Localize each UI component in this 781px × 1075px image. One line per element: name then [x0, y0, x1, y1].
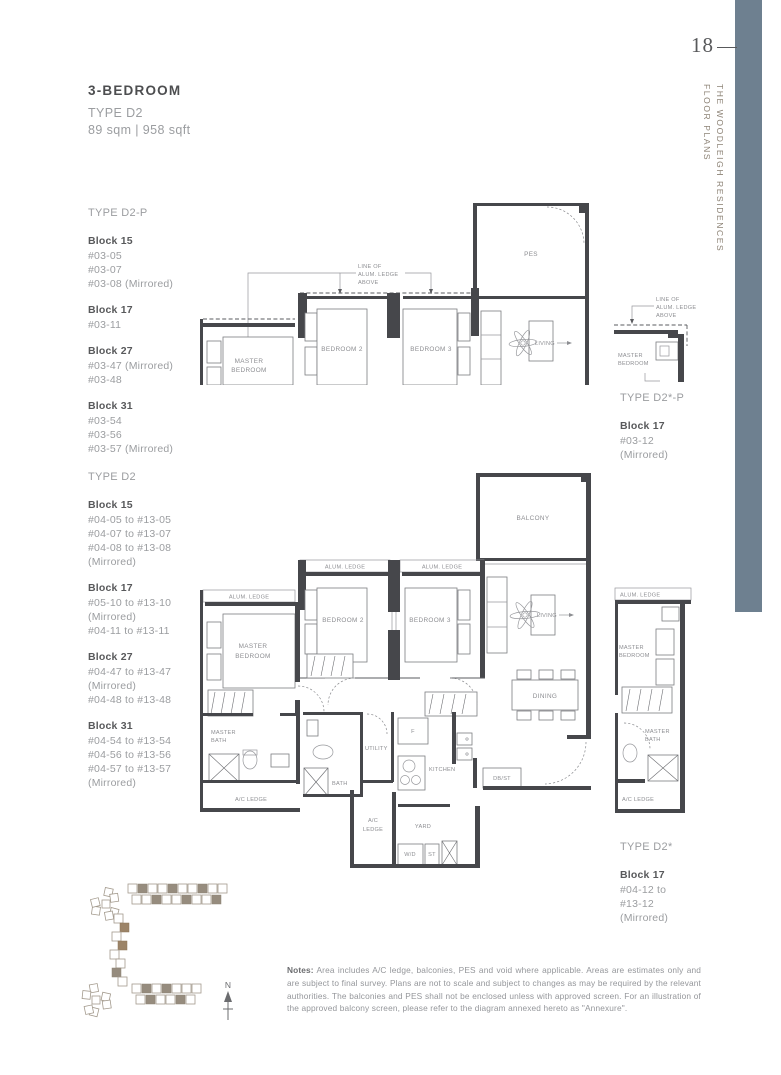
shaft	[442, 841, 457, 865]
wall	[392, 792, 396, 866]
wall	[476, 473, 590, 477]
block-group: Block 31 #04-54 to #13-54 #04-56 to #13-…	[88, 720, 208, 790]
wall	[480, 560, 485, 678]
wall	[473, 203, 589, 206]
furniture	[305, 624, 317, 654]
block-name: Block 17	[620, 420, 710, 432]
stove	[398, 756, 425, 790]
label-arrow-head	[567, 341, 572, 345]
label-arrow-head	[569, 613, 574, 617]
block-name: Block 15	[88, 499, 208, 511]
room-label-masterbath-2: BATH	[211, 738, 227, 744]
chair	[561, 670, 575, 679]
page-number-rule	[717, 47, 737, 48]
furniture	[207, 622, 221, 648]
wall	[680, 600, 685, 810]
room-label-living: LIVING	[535, 341, 555, 347]
wardrobe	[208, 690, 253, 716]
block-name: Block 17	[88, 304, 208, 316]
block-name: Block 27	[88, 345, 208, 357]
wall	[295, 602, 300, 682]
unit-number: #04-47 to #13-47	[88, 665, 208, 679]
bed	[405, 588, 457, 662]
wall-pillar	[471, 288, 479, 336]
floor-plan-type-d2: BALCONY ALUM. LEDGE ALUM. LEDGE ALUM. LE…	[195, 462, 615, 877]
shower	[209, 754, 239, 782]
room-label-acledge: A/C LEDGE	[235, 797, 267, 803]
block-name: Block 15	[88, 235, 208, 247]
furniture	[458, 313, 470, 341]
ledge-label: ALUM. LEDGE	[325, 565, 365, 571]
block-group: Block 17 #05-10 to #13-10 (Mirrored) #04…	[88, 582, 208, 638]
room-label-bedroom3: BEDROOM 3	[409, 617, 451, 624]
wardrobe-louver	[622, 687, 672, 713]
block-group: Block 27 #04-47 to #13-47 (Mirrored) #04…	[88, 651, 208, 707]
unit-number: #03-12	[620, 434, 710, 448]
leader-line	[405, 273, 431, 289]
unit-number: #03-56	[88, 428, 208, 442]
sofa	[487, 577, 507, 653]
wall-corner	[579, 203, 589, 213]
leader-line	[632, 306, 654, 319]
wall	[615, 779, 645, 783]
room-label-master-1: MASTER	[235, 358, 264, 365]
window-band	[615, 600, 691, 604]
site-block-row-top	[128, 884, 227, 904]
window-band	[480, 558, 586, 561]
ledge-label: ALUM. LEDGE	[620, 593, 660, 599]
chair	[539, 670, 553, 679]
notes: Notes: Area includes A/C ledge, balconie…	[287, 964, 701, 1015]
unit-number: #04-12 to	[620, 883, 710, 897]
wall	[475, 806, 480, 868]
unit-number: #03-57 (Mirrored)	[88, 442, 208, 456]
wall	[615, 809, 685, 813]
wall	[350, 864, 480, 868]
wall	[391, 712, 394, 782]
ledge-label: ALUM. LEDGE	[422, 565, 462, 571]
door-swing	[624, 723, 650, 749]
room-label-masterbath-1: MASTER	[645, 729, 670, 735]
chair	[539, 711, 553, 720]
vertical-title-line1: THE WOODLEIGH RESIDENCES	[715, 84, 725, 252]
site-block-column	[110, 914, 129, 986]
vertical-title-line2: FLOOR PLANS	[702, 84, 712, 161]
unit-number: (Mirrored)	[88, 776, 208, 790]
wall	[586, 473, 591, 735]
unit-number: #04-54 to #13-54	[88, 734, 208, 748]
wall	[473, 203, 477, 300]
room-label-master-2: BEDROOM	[618, 361, 649, 367]
dbst-label: DB/ST	[493, 776, 511, 782]
unit-type: TYPE D2	[88, 106, 190, 120]
north-arrow-icon: N	[223, 980, 233, 1020]
unit-number: #05-10 to #13-10	[88, 596, 208, 610]
sink	[307, 720, 318, 736]
room-label-master-2: BEDROOM	[619, 653, 650, 659]
room-label-balcony: BALCONY	[517, 515, 550, 522]
floor-plan-type-d2star-p: LINE OF ALUM. LEDGE ABOVE MASTER BEDROOM	[612, 288, 707, 388]
window-band	[403, 296, 473, 299]
site-cluster	[82, 984, 111, 1017]
ledge-label: ALUM. LEDGE	[229, 595, 269, 601]
site-block-row-bottom	[132, 984, 201, 1004]
annotation-line2: ALUM. LEDGE	[656, 305, 696, 311]
north-label: N	[225, 980, 231, 990]
st-label: ST	[428, 852, 436, 858]
room-label-utility: UTILITY	[365, 746, 388, 752]
block-group: Block 15 #03-05 #03-07 #03-08 (Mirrored)	[88, 235, 208, 291]
closet	[656, 342, 678, 360]
wall	[350, 790, 354, 868]
shower	[304, 768, 328, 796]
room-label-bedroom3: BEDROOM 3	[410, 346, 452, 353]
toilet	[623, 744, 637, 762]
furniture	[207, 341, 221, 363]
unit-number: #04-05 to #13-05	[88, 513, 208, 527]
unit-number: (Mirrored)	[88, 610, 208, 624]
floor-plan-type-d2p: PES LINE OF ALUM. LEDGE ABOVE BEDROOM 2 …	[195, 193, 615, 385]
wall	[473, 758, 477, 788]
room-label-master-2: BEDROOM	[231, 367, 266, 374]
wall	[476, 473, 480, 561]
leader-line	[340, 273, 356, 289]
wall	[678, 334, 684, 382]
wall	[295, 700, 300, 714]
notes-label: Notes:	[287, 965, 314, 975]
room-label-living: LIVING	[537, 613, 557, 619]
furniture	[458, 624, 470, 654]
fridge-label: F	[411, 729, 415, 735]
room-label-yard: YARD	[415, 824, 431, 830]
wall	[360, 712, 363, 797]
block-group: Block 15 #04-05 to #13-05 #04-07 to #13-…	[88, 499, 208, 569]
unit-number: (Mirrored)	[88, 555, 208, 569]
page-title: 3-BEDROOM	[88, 83, 190, 98]
annotation-line3: ABOVE	[358, 280, 379, 286]
unit-area: 89 sqm | 958 sqft	[88, 123, 190, 137]
unit-number: #13-12	[620, 897, 710, 911]
bed	[223, 614, 295, 688]
wardrobe	[656, 659, 674, 685]
wall	[203, 780, 300, 783]
room-label-master-1: MASTER	[618, 353, 643, 359]
unit-number: (Mirrored)	[620, 448, 710, 462]
type-label: TYPE D2*-P	[620, 392, 710, 404]
door-swing	[547, 207, 584, 244]
site-plan-map: N	[70, 860, 265, 1045]
room-label-master-1: MASTER	[239, 643, 268, 650]
wardrobe	[425, 692, 477, 716]
annotation-line1: LINE OF	[358, 264, 382, 270]
vertical-title: THE WOODLEIGH RESIDENCESFLOOR PLANS	[700, 84, 726, 252]
wall-line	[645, 373, 660, 381]
sink	[271, 754, 289, 767]
block-group: Block 17 #03-11	[88, 304, 208, 332]
page-number: 18	[691, 33, 714, 58]
door-swing	[367, 714, 387, 734]
window-band	[205, 602, 295, 606]
room-label-kitchen: KITCHEN	[429, 767, 455, 773]
room-label-bath: BATH	[332, 781, 348, 787]
wall	[200, 808, 300, 812]
counter	[457, 733, 472, 745]
unit-number: #03-11	[88, 318, 208, 332]
section-type-d2: TYPE D2 Block 15 #04-05 to #13-05 #04-07…	[88, 471, 208, 803]
block-group: Block 17 #04-12 to #13-12 (Mirrored)	[620, 869, 710, 925]
annotation-line3: ABOVE	[656, 313, 677, 319]
unit-number: #03-54	[88, 414, 208, 428]
room-label-masterbath-2: BATH	[645, 737, 661, 743]
wall	[363, 780, 393, 783]
wall	[567, 735, 591, 739]
room-label-bedroom2: BEDROOM 2	[322, 617, 364, 624]
window-band	[614, 330, 672, 334]
door-swing	[298, 686, 324, 712]
block-name: Block 27	[88, 651, 208, 663]
notes-body: Area includes A/C ledge, balconies, PES …	[287, 965, 701, 1013]
furniture	[458, 347, 470, 375]
unit-number: #03-07	[88, 263, 208, 277]
wall-pillar	[388, 630, 400, 680]
room-label-master-2: BEDROOM	[235, 653, 270, 660]
unit-number: #04-56 to #13-56	[88, 748, 208, 762]
window-band	[402, 572, 482, 576]
block-name: Block 17	[620, 869, 710, 881]
door-swing	[328, 678, 355, 705]
room-label-acledge2-1: A/C	[368, 818, 378, 824]
annotation-line1: LINE OF	[656, 297, 680, 303]
wall	[200, 590, 203, 812]
unit-number: (Mirrored)	[620, 911, 710, 925]
floor-plan-page: 18 THE WOODLEIGH RESIDENCESFLOOR PLANS 3…	[0, 0, 781, 1075]
leader-arrow	[630, 319, 634, 324]
unit-number: #04-11 to #13-11	[88, 624, 208, 638]
sofa	[481, 311, 501, 385]
wall-pillar	[387, 293, 400, 338]
block-name: Block 31	[88, 400, 208, 412]
chair	[517, 670, 531, 679]
wall	[452, 712, 456, 764]
floor-plan-type-d2star: ALUM. LEDGE MASTER BEDROOM MASTER BATH A…	[612, 583, 702, 828]
section-type-d2p: TYPE D2-P Block 15 #03-05 #03-07 #03-08 …	[88, 207, 208, 469]
window-band	[302, 572, 388, 576]
wall	[668, 330, 678, 338]
chair	[561, 711, 575, 720]
wardrobe	[307, 654, 353, 678]
bed	[317, 588, 367, 662]
block-name: Block 31	[88, 720, 208, 732]
room-label-pes: PES	[524, 251, 538, 258]
unit-number: #04-07 to #13-07	[88, 527, 208, 541]
unit-number: (Mirrored)	[88, 679, 208, 693]
wall	[303, 712, 363, 715]
toilet	[243, 751, 257, 769]
room-label-masterbath-1: MASTER	[211, 730, 236, 736]
toilet	[313, 745, 333, 759]
furniture	[207, 367, 221, 385]
wall	[200, 319, 203, 385]
unit-number: #03-47 (Mirrored)	[88, 359, 208, 373]
furniture	[305, 347, 317, 375]
section-type-d2star-p: TYPE D2*-P Block 17 #03-12 (Mirrored)	[620, 392, 710, 475]
wall	[398, 804, 450, 807]
furniture	[207, 654, 221, 680]
wall	[615, 600, 618, 695]
furniture	[305, 313, 317, 341]
window-band	[307, 296, 387, 299]
block-name: Block 17	[88, 582, 208, 594]
room-label-master-1: MASTER	[619, 645, 644, 651]
window-band	[477, 296, 585, 299]
entry-door-swing	[545, 742, 586, 784]
header: 3-BEDROOM TYPE D2 89 sqm | 958 sqft	[88, 83, 190, 137]
accent-bar	[735, 0, 762, 612]
type-label: TYPE D2	[88, 471, 208, 483]
furniture	[458, 590, 470, 620]
window-band	[203, 323, 295, 327]
wall	[483, 786, 591, 790]
block-group: Block 17 #03-12 (Mirrored)	[620, 420, 710, 462]
chair	[517, 711, 531, 720]
wall	[296, 714, 300, 784]
furniture	[305, 590, 317, 620]
unit-number: #03-48	[88, 373, 208, 387]
room-label-acledge2-2: LEDGE	[363, 827, 383, 833]
block-group: Block 27 #03-47 (Mirrored) #03-48	[88, 345, 208, 387]
type-label: TYPE D2-P	[88, 207, 208, 219]
counter	[457, 748, 472, 760]
unit-number: #03-05	[88, 249, 208, 263]
annotation-line2: ALUM. LEDGE	[358, 272, 398, 278]
wall-pillar	[388, 560, 400, 612]
type-label: TYPE D2*	[620, 841, 710, 853]
unit-number: #03-08 (Mirrored)	[88, 277, 208, 291]
block-group: Block 31 #03-54 #03-56 #03-57 (Mirrored)	[88, 400, 208, 456]
unit-number: #04-08 to #13-08	[88, 541, 208, 555]
wardrobe	[656, 629, 674, 655]
closet	[662, 607, 679, 621]
room-label-bedroom2: BEDROOM 2	[321, 346, 363, 353]
section-type-d2star: TYPE D2* Block 17 #04-12 to #13-12 (Mirr…	[620, 841, 710, 938]
wall	[615, 713, 618, 810]
wd-label: W/D	[404, 852, 416, 858]
unit-number: #04-48 to #13-48	[88, 693, 208, 707]
wall	[203, 713, 253, 716]
wall-corner	[581, 473, 590, 482]
unit-number: #04-57 to #13-57	[88, 762, 208, 776]
room-label-acledge: A/C LEDGE	[622, 797, 654, 803]
wall	[585, 203, 589, 385]
room-label-dining: DINING	[533, 693, 557, 700]
shower	[648, 755, 678, 781]
